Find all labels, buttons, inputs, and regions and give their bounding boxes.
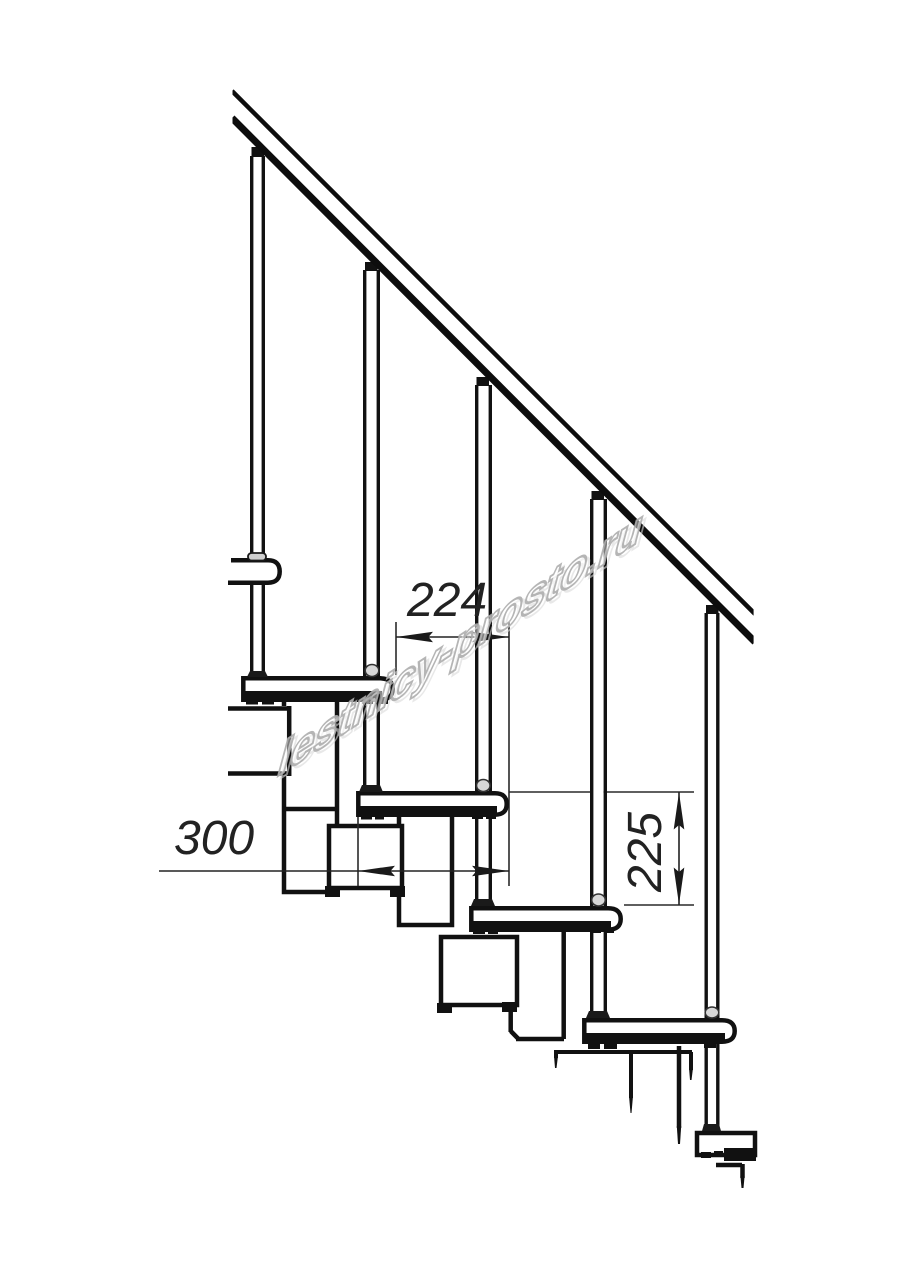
svg-text:300: 300	[174, 812, 254, 865]
svg-text:225: 225	[619, 812, 672, 893]
